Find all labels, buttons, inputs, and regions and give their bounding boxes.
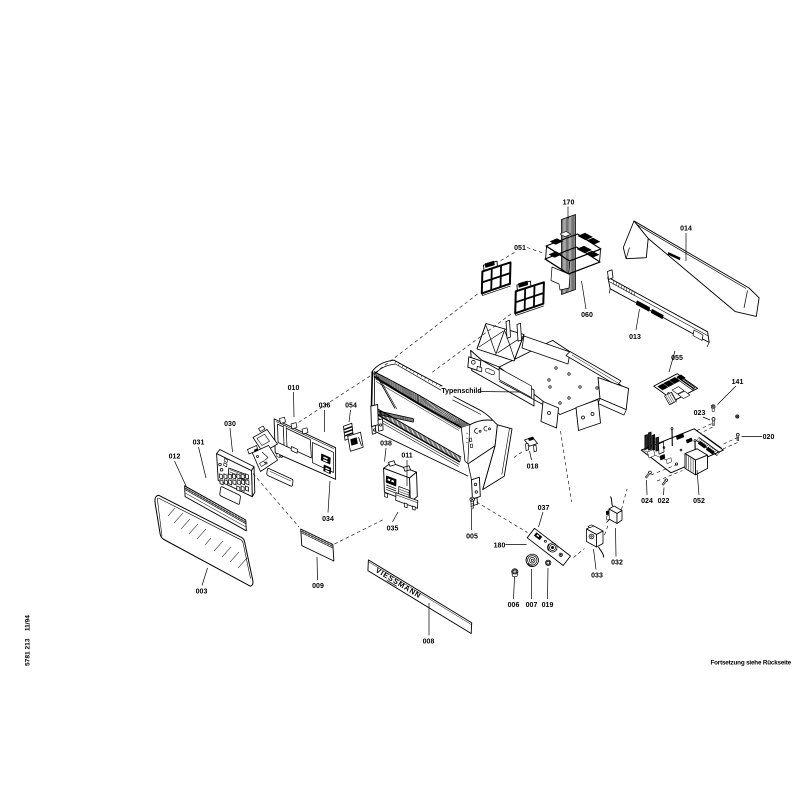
svg-text:020: 020 xyxy=(763,434,775,441)
svg-text:032: 032 xyxy=(611,560,623,567)
svg-text:5781 213 11/94: 5781 213 11/94 xyxy=(25,615,32,666)
svg-text:008: 008 xyxy=(423,639,435,646)
svg-text:019: 019 xyxy=(542,602,554,609)
svg-text:038: 038 xyxy=(380,441,392,448)
svg-text:014: 014 xyxy=(680,226,692,233)
svg-text:007: 007 xyxy=(526,602,538,609)
svg-text:024: 024 xyxy=(641,498,653,505)
svg-text:018: 018 xyxy=(527,464,539,471)
svg-text:170: 170 xyxy=(563,200,575,207)
svg-text:Fortsetzung siehe Rückseite: Fortsetzung siehe Rückseite xyxy=(710,660,791,667)
svg-text:006: 006 xyxy=(508,602,520,609)
svg-text:012: 012 xyxy=(169,454,181,461)
svg-text:037: 037 xyxy=(538,505,550,512)
svg-text:054: 054 xyxy=(345,403,357,410)
svg-text:022: 022 xyxy=(658,498,670,505)
svg-text:031: 031 xyxy=(193,440,205,447)
svg-text:030: 030 xyxy=(224,421,236,428)
svg-text:005: 005 xyxy=(466,534,478,541)
svg-text:051: 051 xyxy=(514,245,526,252)
svg-text:Typenschild: Typenschild xyxy=(441,388,481,395)
svg-text:180: 180 xyxy=(494,543,506,550)
svg-text:010: 010 xyxy=(288,385,300,392)
svg-text:033: 033 xyxy=(591,573,603,580)
svg-text:060: 060 xyxy=(581,312,593,319)
svg-text:052: 052 xyxy=(693,498,705,505)
svg-text:003: 003 xyxy=(196,589,208,596)
svg-text:023: 023 xyxy=(694,410,706,417)
svg-text:011: 011 xyxy=(401,453,412,460)
svg-text:034: 034 xyxy=(322,516,334,523)
svg-text:035: 035 xyxy=(387,526,399,533)
svg-text:141: 141 xyxy=(732,379,744,386)
svg-text:013: 013 xyxy=(629,334,641,341)
svg-text:009: 009 xyxy=(312,583,324,590)
